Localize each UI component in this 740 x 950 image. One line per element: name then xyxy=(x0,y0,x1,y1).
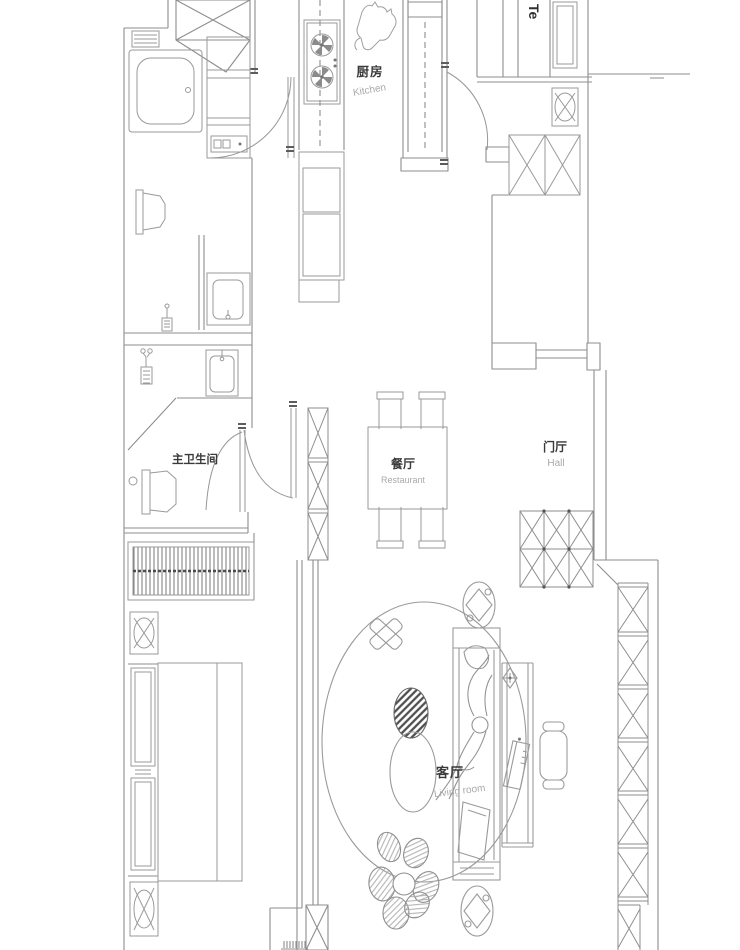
potted-plant-icon xyxy=(463,582,495,628)
dining-label-zh: 餐厅 xyxy=(391,456,415,471)
living-label-zh: 客厅 xyxy=(436,765,464,780)
dining-chair xyxy=(377,392,403,429)
desk-chair-icon xyxy=(540,722,567,789)
floor-cushion-icon xyxy=(394,688,428,738)
living-label-en: Living room xyxy=(433,783,486,800)
window-wall-east xyxy=(492,343,600,370)
central-hatched-wall xyxy=(308,408,328,560)
tall-cabinet xyxy=(553,2,577,68)
dining-chair xyxy=(419,507,445,548)
double-bed-icon xyxy=(158,663,242,881)
pouf-icon xyxy=(390,732,436,812)
dining-chair xyxy=(419,392,445,429)
toilet-icon-master xyxy=(129,470,176,514)
shower-mixer-icon-upper xyxy=(162,304,172,331)
flue-box-icon xyxy=(552,88,578,126)
door-arc-master-bath xyxy=(206,430,245,512)
shaft-brace xyxy=(176,0,250,72)
shoe-cabinet-grid-icon xyxy=(520,509,593,588)
entry-wall-stub xyxy=(486,147,509,162)
window-icon-b xyxy=(131,778,155,870)
floor-plan-canvas: 厨房 Kitchen Te 主卫生间 餐厅 Restaurant 门厅 Hall… xyxy=(0,0,740,950)
tea-room-label: Te xyxy=(526,4,542,20)
corner-hatch-box xyxy=(306,905,328,950)
central-wall-lower xyxy=(270,560,318,950)
living-room-fixtures xyxy=(322,582,567,936)
radiator-shelf-icon xyxy=(132,31,159,47)
shower-mixer-icon-master xyxy=(141,349,152,384)
dining-chair xyxy=(377,507,403,548)
island-drawer xyxy=(408,2,442,17)
flue-box-icon-b xyxy=(130,882,158,936)
study-desk-icon xyxy=(502,663,533,847)
doors xyxy=(206,72,488,512)
kitchen-fixtures xyxy=(299,2,396,302)
tea-room-fixtures xyxy=(509,2,580,195)
bathroom-fixtures xyxy=(129,31,250,514)
room-labels: 厨房 Kitchen Te 主卫生间 餐厅 Restaurant 门厅 Hall… xyxy=(172,4,567,800)
door-arc-island xyxy=(447,72,488,150)
potted-plant-icon xyxy=(461,886,493,936)
crosshatch-cabinet xyxy=(509,135,580,195)
kitchen-counter-cabinets xyxy=(299,152,344,302)
kitchen-label-zh: 厨房 xyxy=(356,64,383,79)
bedroom-fixtures xyxy=(128,542,254,936)
cat-icon xyxy=(355,2,396,50)
outer-wall-right-top xyxy=(588,0,690,343)
hall-label-zh: 门厅 xyxy=(543,439,567,454)
hall-fixtures xyxy=(520,509,648,950)
kitchen-label-en: Kitchen xyxy=(352,82,387,99)
master-bathroom-label-zh: 主卫生间 xyxy=(172,452,218,466)
hall-label-en: Hall xyxy=(547,458,564,469)
bathtub-icon xyxy=(129,50,202,132)
tea-room-walls xyxy=(477,0,592,343)
storage-washer-unit xyxy=(207,37,250,158)
sill-comb xyxy=(281,941,308,949)
window-icon-a xyxy=(131,668,155,774)
dining-label-en: Restaurant xyxy=(381,475,426,485)
gas-stove-icon xyxy=(304,20,340,104)
wash-basin-master xyxy=(206,350,238,396)
vanity-basin-upper xyxy=(207,273,250,325)
toilet-icon-upper xyxy=(136,190,165,234)
decor-cross-icon xyxy=(368,617,403,651)
flower-plant-icon xyxy=(367,829,444,929)
radiator-icon xyxy=(128,542,254,600)
compass-decor-icon xyxy=(503,668,517,688)
wardrobe-icon xyxy=(618,583,648,950)
flue-box-icon-a xyxy=(130,612,158,654)
